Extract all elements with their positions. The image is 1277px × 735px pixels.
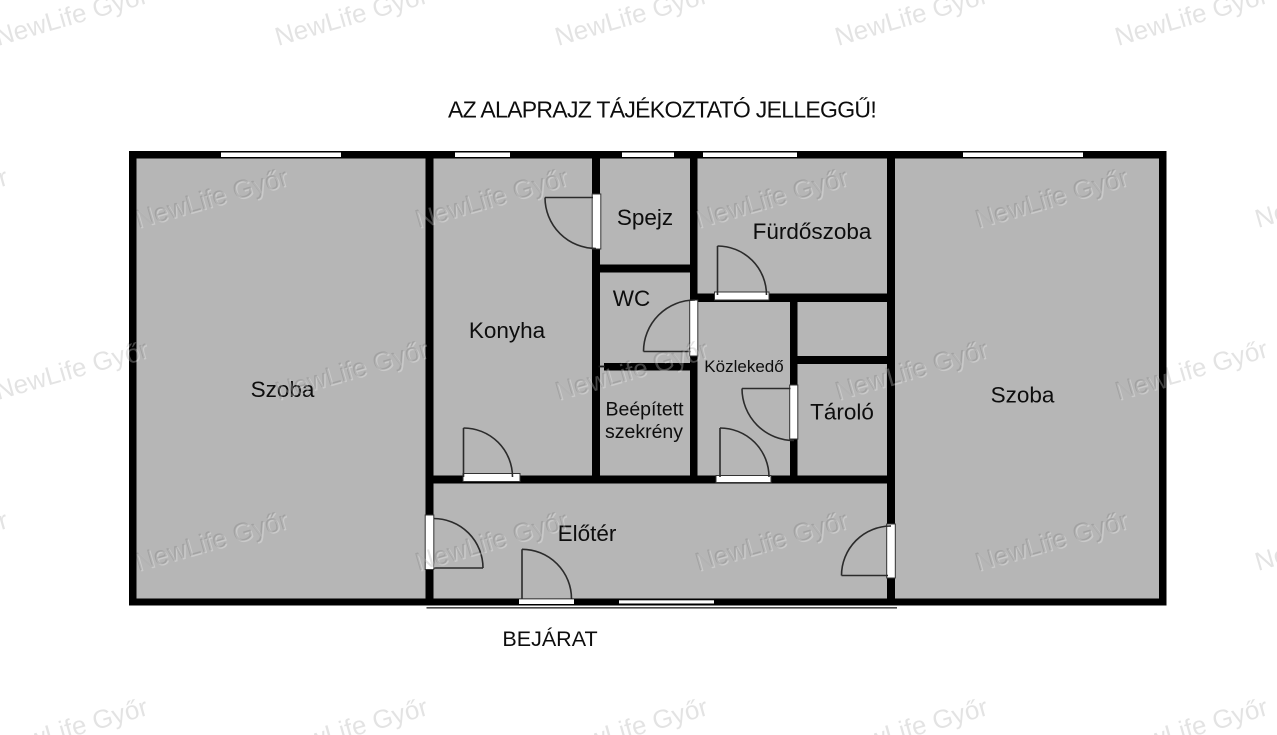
svg-text:szekrény: szekrény bbox=[605, 421, 683, 443]
svg-text:Közlekedő: Közlekedő bbox=[704, 357, 783, 376]
svg-text:Beépített: Beépített bbox=[605, 399, 684, 421]
svg-text:BEJÁRAT: BEJÁRAT bbox=[502, 626, 597, 651]
svg-text:Spejz: Spejz bbox=[617, 205, 673, 230]
svg-text:Konyha: Konyha bbox=[469, 318, 546, 343]
svg-text:Fürdőszoba: Fürdőszoba bbox=[753, 219, 872, 244]
svg-text:AZ ALAPRAJZ TÁJÉKOZTATÓ JELLEG: AZ ALAPRAJZ TÁJÉKOZTATÓ JELLEGGŰ! bbox=[448, 97, 876, 123]
svg-text:Szoba: Szoba bbox=[991, 383, 1055, 408]
svg-text:WC: WC bbox=[613, 286, 651, 311]
